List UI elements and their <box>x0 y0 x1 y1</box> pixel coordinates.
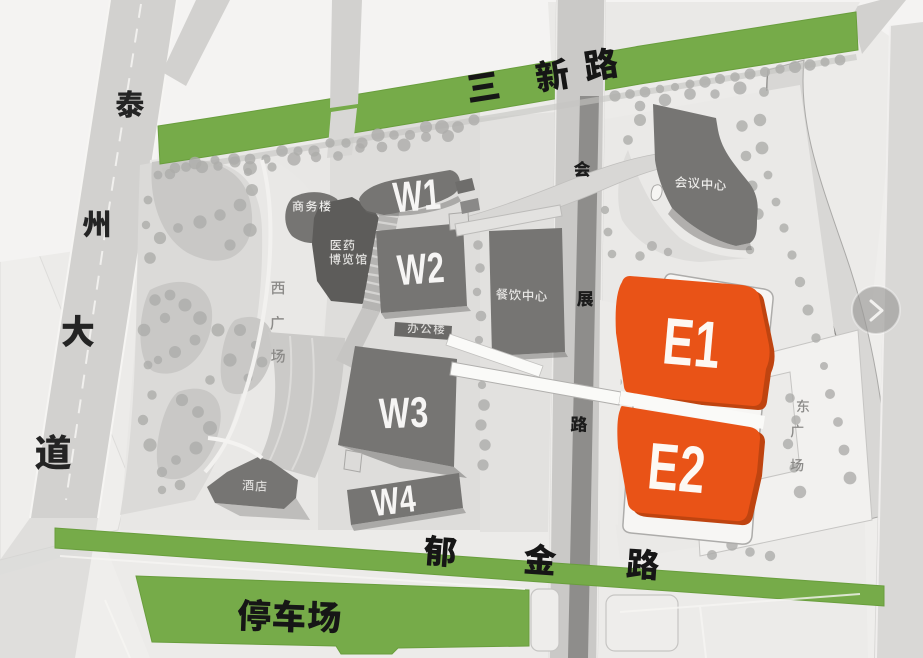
svg-text:W3: W3 <box>378 389 430 438</box>
svg-text:W1: W1 <box>391 169 443 221</box>
svg-text:E1: E1 <box>660 304 724 383</box>
svg-text:W4: W4 <box>370 478 419 525</box>
svg-text:E2: E2 <box>645 429 709 508</box>
svg-text:W2: W2 <box>395 243 446 294</box>
